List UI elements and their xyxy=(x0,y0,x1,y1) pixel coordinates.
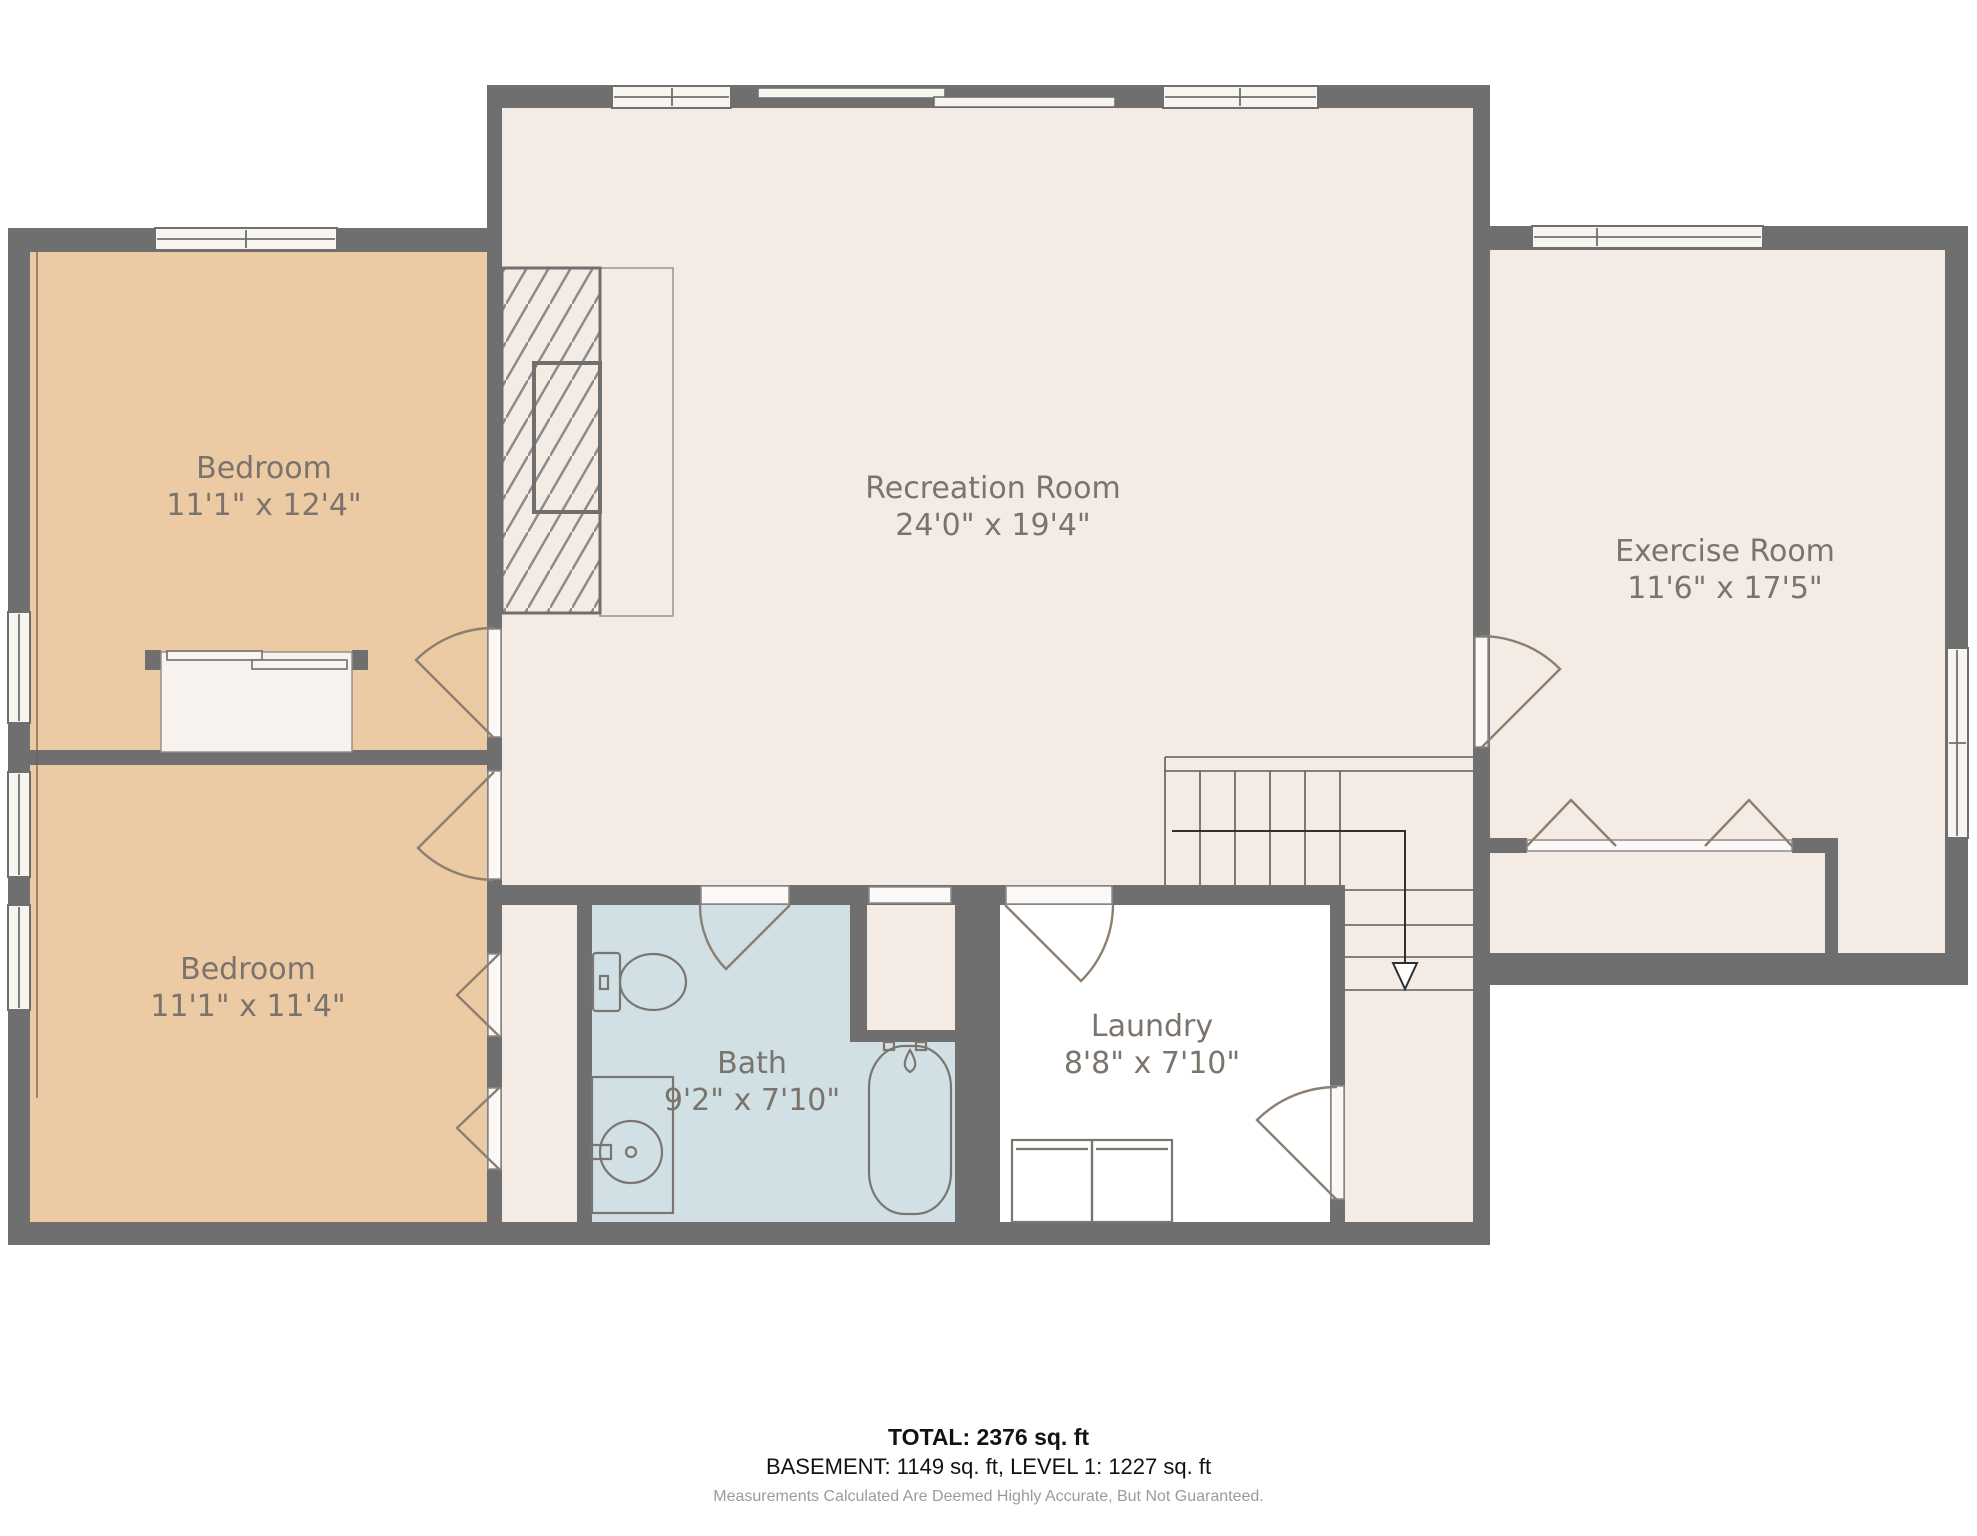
bedroom-2-left-window-2 xyxy=(8,905,30,1010)
bath-label: Bath xyxy=(717,1046,787,1081)
bedroom-2-bifold-opening-1 xyxy=(488,954,501,1036)
laundry-label: Laundry xyxy=(1091,1009,1213,1044)
recreation-top-window-right xyxy=(1163,86,1318,108)
level-areas-text: BASEMENT: 1149 sq. ft, LEVEL 1: 1227 sq.… xyxy=(0,1454,1977,1480)
laundry-dims: 8'8" x 7'10" xyxy=(1064,1046,1240,1081)
bedroom-closet-strip-floor xyxy=(502,905,577,1222)
stair-landing-floor xyxy=(1345,885,1473,1222)
exercise-right-window xyxy=(1947,648,1968,838)
bedroom-2-dims: 11'1" x 11'4" xyxy=(150,989,345,1024)
tub-alcove-floor xyxy=(850,1042,960,1222)
laundry-right-door-leaf xyxy=(1331,1086,1344,1199)
bedroom-1-top-window xyxy=(155,228,337,250)
total-area-text: TOTAL: 2376 sq. ft xyxy=(0,1424,1977,1451)
bedroom-2-left-window-1 xyxy=(8,772,30,877)
recess-nook-floor xyxy=(865,905,955,1042)
dryer-icon xyxy=(1092,1140,1172,1222)
closet-sliding-door-2 xyxy=(252,660,347,669)
laundry-right-door-swing xyxy=(1257,1087,1337,1200)
bath-door-opening xyxy=(701,886,789,904)
bedroom-1-left-window xyxy=(8,612,30,723)
exercise-room-dims: 11'6" x 17'5" xyxy=(1627,571,1822,606)
footer: TOTAL: 2376 sq. ft BASEMENT: 1149 sq. ft… xyxy=(0,1424,1977,1506)
bedroom-1-dims: 11'1" x 12'4" xyxy=(166,488,361,523)
laundry-door-swing xyxy=(1005,905,1113,981)
laundry-door-opening xyxy=(1006,886,1112,904)
recreation-room-label: Recreation Room xyxy=(865,471,1120,506)
washer-icon xyxy=(1012,1140,1092,1222)
closet-sliding-door-1 xyxy=(167,651,262,660)
exercise-top-window xyxy=(1532,226,1763,248)
bedroom-1-label: Bedroom xyxy=(196,451,332,486)
fireplace-chimney-hatch xyxy=(502,268,600,613)
recess-cased-opening xyxy=(869,887,951,903)
bedroom-2-bifold-opening-2 xyxy=(488,1088,501,1169)
exercise-closet-sill xyxy=(1527,840,1792,851)
exercise-room-label: Exercise Room xyxy=(1615,534,1835,569)
recreation-room-dims: 24'0" x 19'4" xyxy=(895,508,1090,543)
disclaimer-text: Measurements Calculated Are Deemed Highl… xyxy=(0,1488,1977,1506)
floor-plan-canvas: Bedroom 11'1" x 12'4" Bedroom 11'1" x 11… xyxy=(0,0,1977,1536)
floor-plan-page: Bedroom 11'1" x 12'4" Bedroom 11'1" x 11… xyxy=(0,0,1977,1536)
bedroom-2-label: Bedroom xyxy=(180,952,316,987)
bedroom-1-closet xyxy=(161,651,352,752)
bedroom-2-door-leaf xyxy=(488,771,501,879)
recreation-top-window-left xyxy=(612,86,731,108)
bedroom-1-door-leaf xyxy=(488,629,501,737)
bath-dims: 9'2" x 7'10" xyxy=(664,1083,840,1118)
exercise-door-leaf xyxy=(1475,637,1488,747)
laundry-fixtures xyxy=(1012,1140,1172,1222)
